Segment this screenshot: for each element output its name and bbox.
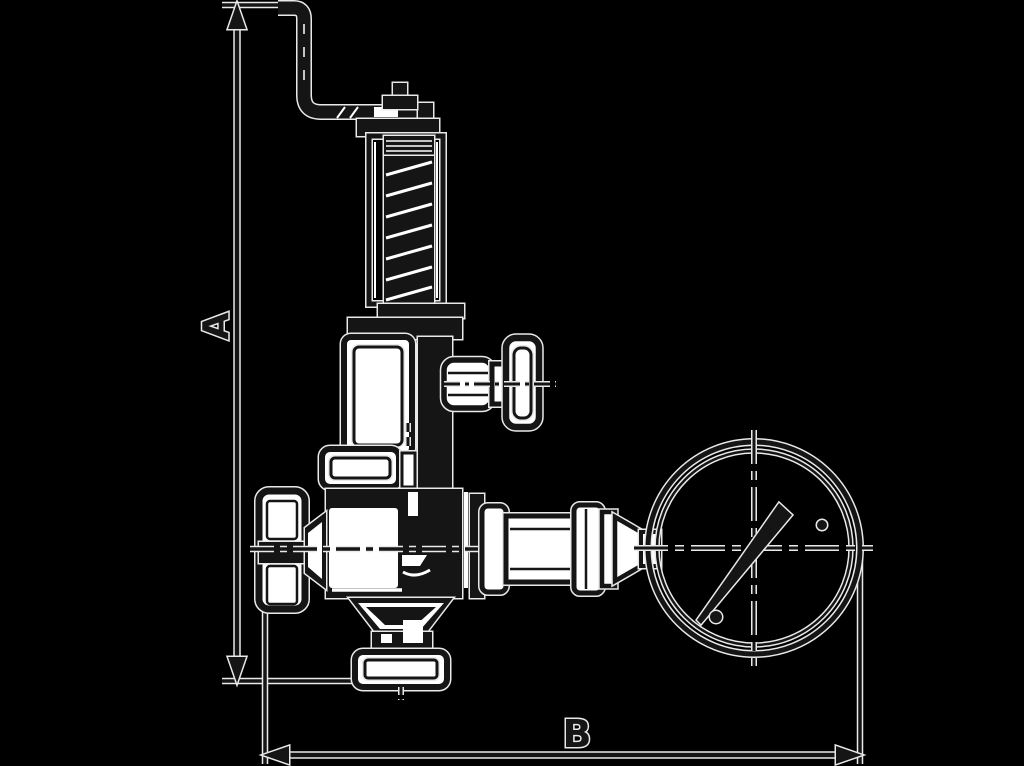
union-nut bbox=[574, 505, 602, 593]
upper-flange-inner bbox=[331, 458, 390, 478]
adjusting-stem bbox=[383, 83, 417, 109]
bonnet-step bbox=[378, 304, 464, 318]
handwheel-hub bbox=[259, 542, 305, 563]
body-stem-slot bbox=[408, 492, 418, 516]
valve-technical-drawing: AA BB bbox=[0, 0, 1024, 766]
handwheel-window-top bbox=[267, 501, 297, 539]
handwheel-window-bottom bbox=[267, 566, 297, 604]
stem-cap bbox=[383, 96, 417, 109]
valve-body bbox=[326, 489, 484, 598]
gauge-dial-dot bbox=[710, 611, 722, 623]
outlet-union bbox=[482, 505, 659, 593]
test-knob bbox=[444, 338, 556, 427]
neck-notch bbox=[381, 634, 392, 643]
gauge-dial-dot bbox=[817, 520, 827, 530]
union-pipe bbox=[506, 516, 574, 582]
dimension-label-a: A bbox=[196, 312, 237, 340]
bottom-flange-inner bbox=[365, 660, 437, 678]
upper-flange-slot bbox=[402, 453, 415, 487]
pressure-gauge bbox=[634, 430, 873, 666]
lifting-lever bbox=[278, 8, 433, 129]
bottom-flange-assembly bbox=[349, 598, 453, 700]
dimension-label-b: B bbox=[563, 712, 592, 756]
neck-window bbox=[403, 620, 423, 643]
drawing-canvas: AA BB bbox=[0, 0, 1024, 766]
chamber-inner bbox=[354, 347, 402, 445]
spring-bonnet bbox=[348, 119, 464, 339]
gauge-needle bbox=[697, 503, 792, 624]
